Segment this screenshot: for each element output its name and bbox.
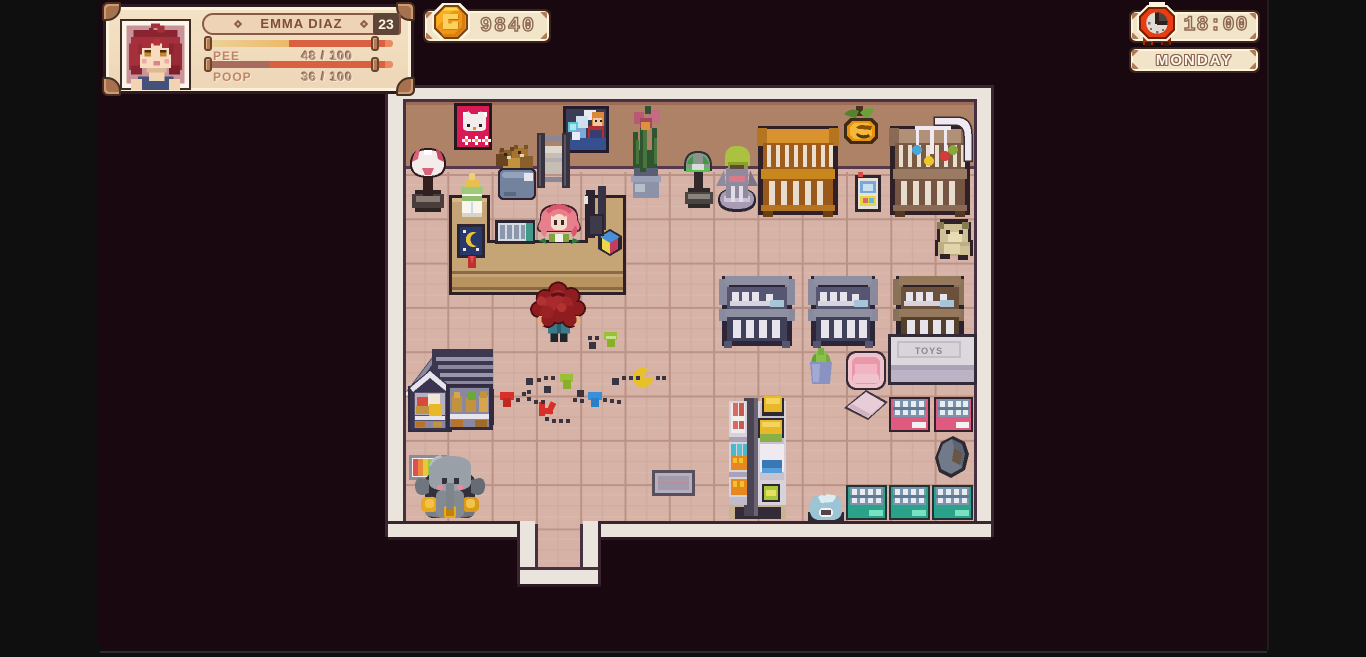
svg-text:TOYS: TOYS — [915, 346, 943, 356]
